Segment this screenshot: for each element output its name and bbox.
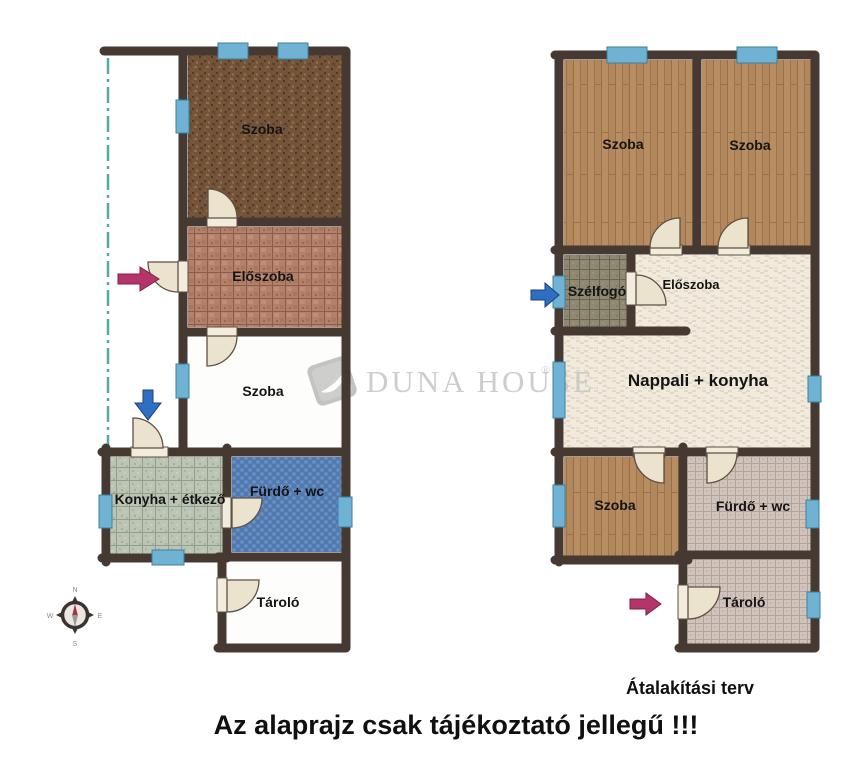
room-label: Tároló <box>257 594 300 610</box>
room-label: Előszoba <box>232 268 294 284</box>
door-leaf <box>217 578 227 612</box>
window <box>278 43 308 59</box>
room-label: Szélfogó <box>568 283 626 299</box>
compass-label-s: S <box>73 641 78 648</box>
room-label: Szoba <box>242 383 283 399</box>
window <box>737 47 777 63</box>
corridor-floor <box>111 56 179 448</box>
compass-label-w: W <box>47 613 54 620</box>
floor-plan-canvas: DUNA HOUSE ® <box>0 0 852 768</box>
compass-rose: N E S W <box>47 587 103 648</box>
window <box>152 550 184 565</box>
window <box>176 100 189 133</box>
right-plan-caption: Átalakítási terv <box>626 677 754 698</box>
window <box>807 592 820 618</box>
door-leaf <box>626 272 636 305</box>
watermark-registered-mark: ® <box>541 363 553 377</box>
window <box>176 364 189 398</box>
window <box>553 362 565 418</box>
room-label: Fürdő + wc <box>716 498 791 514</box>
room-label: Szoba <box>729 137 770 153</box>
room-label: Előszoba <box>662 277 720 292</box>
disclaimer-text: Az alaprajz csak tájékoztató jellegű !!! <box>214 710 699 740</box>
room-label: Nappali + konyha <box>628 371 769 390</box>
window <box>806 500 819 528</box>
compass-label-n: N <box>72 587 77 594</box>
room-label: Szoba <box>241 121 282 137</box>
window <box>99 495 112 528</box>
room-label: Tároló <box>723 594 766 610</box>
door-leaf <box>207 327 237 336</box>
entrance-arrow-tarolo <box>630 593 661 615</box>
window <box>808 376 821 402</box>
window <box>553 485 565 527</box>
window <box>607 47 647 63</box>
compass-label-e: E <box>98 613 103 620</box>
door-leaf <box>678 585 688 619</box>
window <box>218 43 248 59</box>
floor-plan-page: DUNA HOUSE ® <box>0 0 852 768</box>
room-label: Szoba <box>602 136 643 152</box>
room-floor-szoba-tr <box>702 60 811 246</box>
room-label: Konyha + étkező <box>115 491 226 507</box>
room-label: Fürdő + wc <box>250 483 325 499</box>
window <box>338 497 352 527</box>
room-label: Szoba <box>594 497 635 513</box>
door-leaf <box>178 261 188 292</box>
